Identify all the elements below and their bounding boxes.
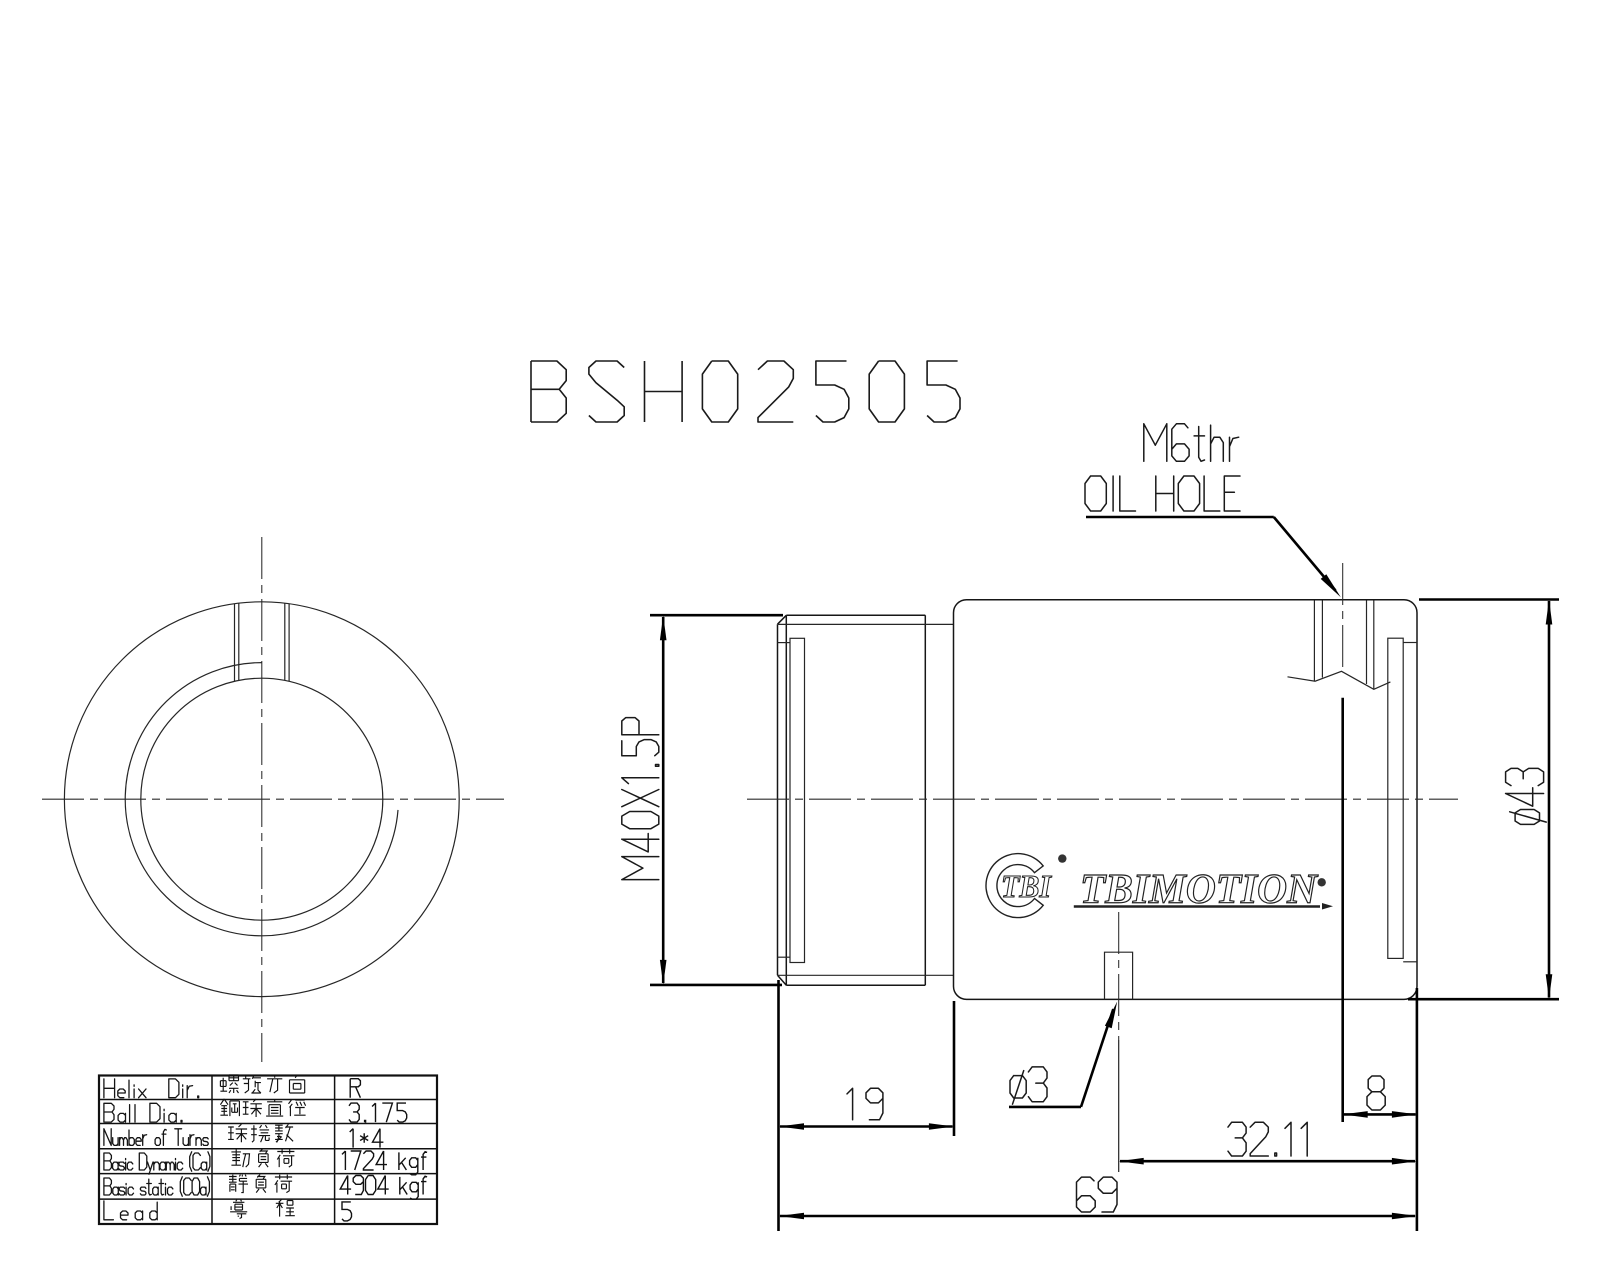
- svg-text:TBI: TBI: [1001, 868, 1052, 904]
